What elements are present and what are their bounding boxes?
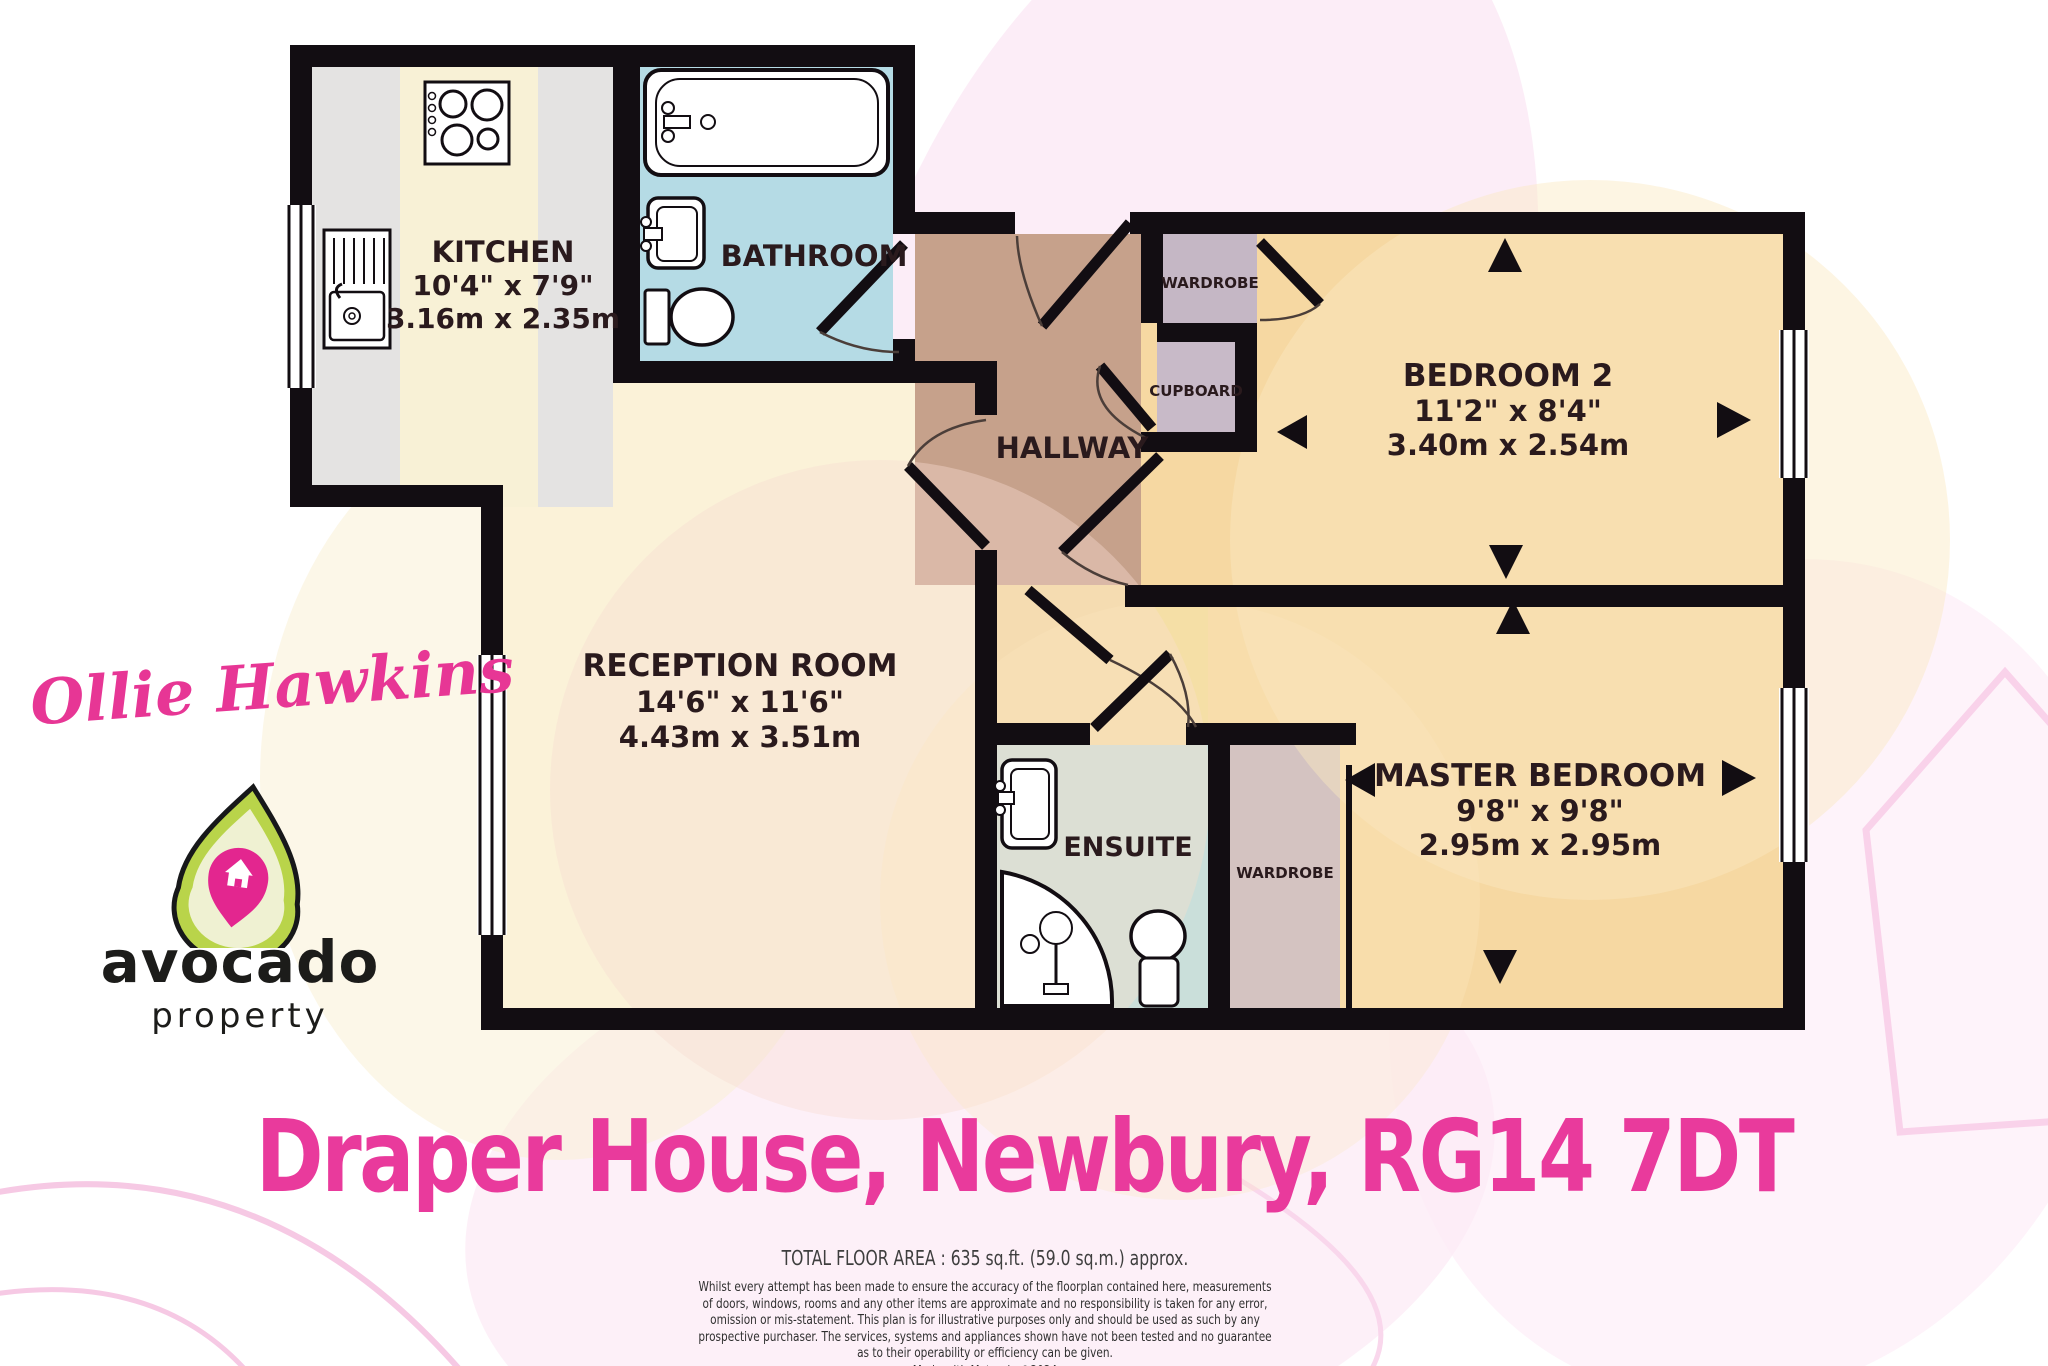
bathroom-toilet-icon: [645, 289, 733, 345]
bedroom2-window: [1779, 330, 1809, 478]
disclaimer-line: prospective purchaser. The services, sys…: [217, 1329, 1754, 1346]
bedroom2-dims-imperial: 11'2" x 8'4": [1414, 394, 1602, 428]
bedroom2-label: BEDROOM 2: [1403, 358, 1613, 394]
disclaimer-line: of doors, windows, rooms and any other i…: [217, 1296, 1754, 1313]
bathroom-label: BATHROOM: [721, 239, 908, 273]
disclaimer-line: omission or mis-statement. This plan is …: [217, 1312, 1754, 1329]
floorplan-page: KITCHEN 10'4" x 7'9" 3.16m x 2.35m BATHR…: [0, 0, 2048, 1366]
metropix-credit: Made with Metropix ©2024: [217, 1363, 1754, 1366]
total-floor-area: TOTAL FLOOR AREA : 635 sq.ft. (59.0 sq.m…: [217, 1246, 1754, 1270]
pink-arc-line: [0, 1290, 250, 1366]
disclaimer-line: as to their operability or efficiency ca…: [217, 1345, 1754, 1362]
page-title: Draper House, Newbury, RG14 7DT: [184, 1098, 1863, 1215]
kitchen-sink-icon: [324, 230, 390, 348]
brand-name: avocado: [30, 928, 450, 996]
avocado-logo: [130, 778, 350, 948]
master-wardrobe-label: WARDROBE: [1236, 864, 1333, 882]
brand-subtitle: property: [30, 996, 450, 1036]
kitchen-dims-metric: 3.16m x 2.35m: [386, 302, 620, 335]
hob-icon: [425, 82, 509, 164]
master-dims-imperial: 9'8" x 9'8": [1456, 794, 1624, 828]
master-window: [1779, 688, 1809, 862]
kitchen-label: KITCHEN: [432, 235, 575, 269]
ensuite-label: ENSUITE: [1063, 832, 1192, 863]
ensuite-sink-icon: [995, 760, 1056, 848]
kitchen-dims-imperial: 10'4" x 7'9": [412, 269, 593, 302]
master-dims-metric: 2.95m x 2.95m: [1419, 828, 1661, 862]
disclaimer-line: Whilst every attempt has been made to en…: [217, 1279, 1754, 1296]
reception-label: RECEPTION ROOM: [583, 648, 898, 684]
master-label: MASTER BEDROOM: [1374, 758, 1706, 794]
footer: TOTAL FLOOR AREA : 635 sq.ft. (59.0 sq.m…: [217, 1246, 1754, 1366]
hallway-label: HALLWAY: [996, 431, 1150, 465]
bathroom-sink-icon: [641, 198, 704, 268]
bathtub-icon: [645, 70, 888, 175]
reception-dims-metric: 4.43m x 3.51m: [619, 720, 861, 754]
avocado-icon: [167, 778, 315, 948]
kitchen-window: [286, 205, 316, 388]
bedroom2-wardrobe-label: WARDROBE: [1161, 274, 1258, 292]
cupboard-label: CUPBOARD: [1149, 382, 1243, 400]
bedroom2-dims-metric: 3.40m x 2.54m: [1387, 428, 1629, 462]
master-wardrobe-door: [1346, 765, 1352, 1008]
reception-dims-imperial: 14'6" x 11'6": [636, 685, 844, 719]
